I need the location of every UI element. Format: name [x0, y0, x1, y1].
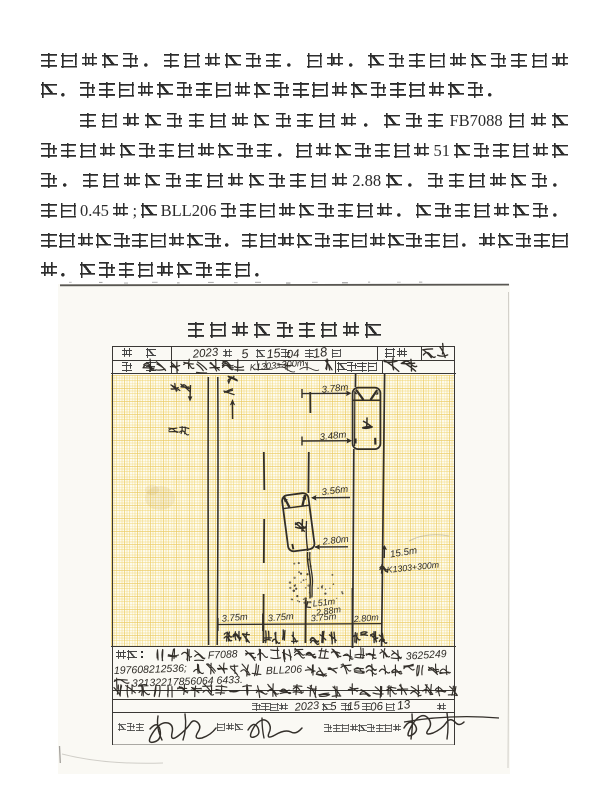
svg-text:2.80m: 2.80m — [321, 533, 349, 547]
svg-text:18: 18 — [312, 344, 329, 361]
svg-text:06: 06 — [370, 701, 384, 714]
svg-text:F7088: F7088 — [208, 648, 239, 662]
svg-text:2.80m: 2.80m — [352, 612, 379, 624]
svg-text:3.56m: 3.56m — [321, 484, 349, 498]
svg-text:5: 5 — [330, 701, 338, 714]
svg-text:3.75m: 3.75m — [267, 610, 294, 623]
svg-text:K1303+300m: K1303+300m — [386, 560, 439, 575]
svg-text:BLL206: BLL206 — [266, 663, 303, 677]
svg-text:15: 15 — [347, 700, 362, 713]
svg-text:2023: 2023 — [293, 700, 320, 714]
svg-text:5: 5 — [240, 347, 249, 362]
svg-text:3625249: 3625249 — [405, 648, 447, 663]
svg-text:3.75m: 3.75m — [310, 611, 337, 623]
svg-text:197608212536;: 197608212536; — [114, 662, 187, 677]
svg-text:3.75m: 3.75m — [221, 611, 248, 624]
svg-text:2023: 2023 — [191, 347, 219, 361]
svg-text:15.5m: 15.5m — [389, 545, 418, 560]
svg-text:13: 13 — [396, 697, 411, 713]
